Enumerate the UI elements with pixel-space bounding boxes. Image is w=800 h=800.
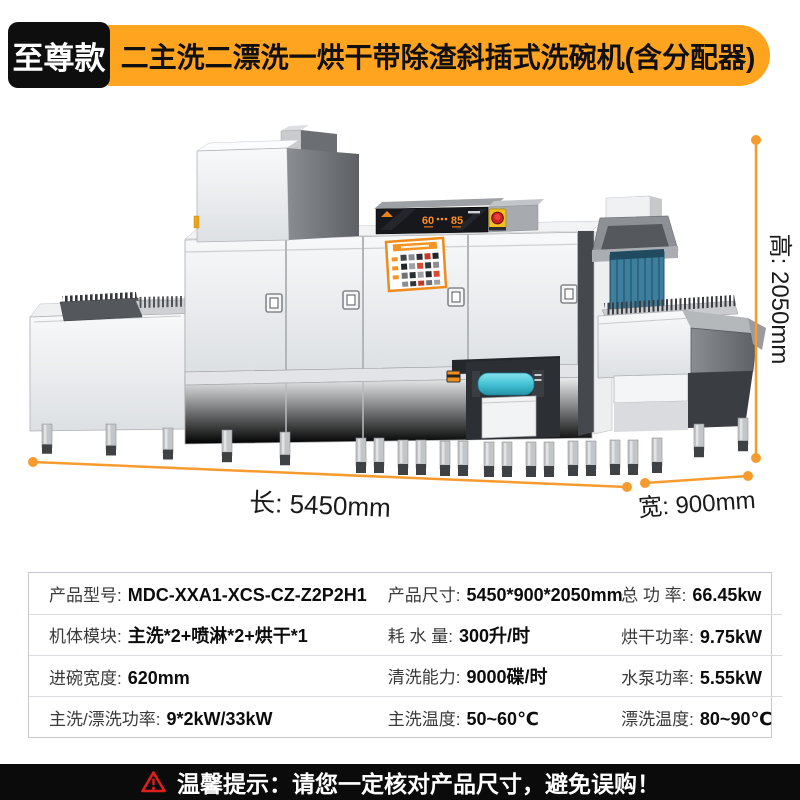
spec-value: 主洗*2+喷淋*2+烘干*1 bbox=[128, 626, 308, 646]
spec-label: 产品尺寸: bbox=[388, 586, 461, 605]
spec-value: 5450*900*2050mm bbox=[467, 585, 623, 605]
dimension-height-label: 高: 2050mm bbox=[766, 234, 793, 365]
spec-label: 主洗/漂洗功率: bbox=[49, 710, 160, 729]
spec-cell-rinse-temp: 漂洗温度:80~90℃ bbox=[601, 705, 782, 730]
spec-cell-size: 产品尺寸:5450*900*2050mm bbox=[368, 581, 601, 606]
spec-cell-dry-power: 烘干功率:9.75kW bbox=[601, 623, 782, 648]
dryer-hood bbox=[194, 125, 359, 242]
temp-display-right: 85 bbox=[451, 215, 463, 227]
spec-value: 50~60℃ bbox=[467, 709, 539, 729]
spec-label: 产品型号: bbox=[49, 586, 122, 605]
door-handle[interactable] bbox=[343, 291, 359, 309]
spec-value: 5.55kW bbox=[700, 668, 762, 688]
spec-label: 主洗温度: bbox=[388, 710, 461, 729]
spec-value: 9*2kW/33kW bbox=[166, 709, 272, 729]
spec-row: 产品型号:MDC-XXA1-XCS-CZ-Z2P2H1 产品尺寸:5450*90… bbox=[29, 573, 782, 614]
door-handle[interactable] bbox=[266, 294, 282, 312]
spec-value: 66.45kw bbox=[692, 585, 761, 605]
spec-cell-wash-power: 主洗/漂洗功率:9*2kW/33kW bbox=[29, 705, 368, 730]
spec-label: 烘干功率: bbox=[621, 628, 694, 647]
footer-notice-text: 温馨提示：请您一定核对产品尺寸，避免误购！ bbox=[177, 765, 660, 799]
temp-display-left: 60 bbox=[422, 215, 434, 227]
spec-cell-inlet-width: 进碗宽度:620mm bbox=[29, 664, 368, 689]
dimension-length-label: 长: 5450mm bbox=[249, 487, 392, 523]
spec-row: 机体模块:主洗*2+喷淋*2+烘干*1 耗 水 量:300升/时 烘干功率:9.… bbox=[29, 614, 782, 655]
spec-cell-modules: 机体模块:主洗*2+喷淋*2+烘干*1 bbox=[29, 622, 368, 648]
spec-cell-pump-power: 水泵功率:5.55kW bbox=[601, 664, 782, 689]
spec-cell-total-power: 总 功 率:66.45kw bbox=[601, 581, 782, 606]
spec-label: 机体模块: bbox=[49, 627, 122, 646]
spec-cell-wash-temp: 主洗温度:50~60℃ bbox=[368, 705, 601, 730]
warning-icon bbox=[140, 770, 167, 794]
spec-value: 9000碟/时 bbox=[467, 667, 548, 687]
model-tier-badge: 至尊款 bbox=[8, 22, 110, 88]
door-handle[interactable] bbox=[561, 285, 577, 303]
control-panel: 60 85 bbox=[374, 198, 544, 234]
product-title-banner: 二主洗二漂洗一烘干带除渣斜插式洗碗机(含分配器) bbox=[106, 25, 770, 86]
dimension-width-label: 宽: 900mm bbox=[637, 487, 756, 522]
spec-value: 300升/时 bbox=[459, 626, 530, 646]
footer-notice-bar: 温馨提示：请您一定核对产品尺寸，避免误购！ bbox=[0, 764, 800, 800]
emergency-stop-button[interactable] bbox=[489, 209, 506, 231]
spec-table: 产品型号:MDC-XXA1-XCS-CZ-Z2P2H1 产品尺寸:5450*90… bbox=[28, 572, 772, 738]
spec-label: 耗 水 量: bbox=[388, 627, 453, 646]
spec-label: 水泵功率: bbox=[621, 669, 694, 688]
spec-value: MDC-XXA1-XCS-CZ-Z2P2H1 bbox=[128, 585, 367, 605]
spec-value: 80~90℃ bbox=[700, 709, 772, 729]
door-handle[interactable] bbox=[448, 288, 464, 306]
spec-label: 进碗宽度: bbox=[49, 669, 122, 688]
spec-label: 总 功 率: bbox=[621, 586, 686, 605]
exit-section bbox=[592, 196, 766, 434]
spec-label: 漂洗温度: bbox=[621, 710, 694, 729]
spec-cell-water-usage: 耗 水 量:300升/时 bbox=[368, 622, 601, 648]
spec-row: 主洗/漂洗功率:9*2kW/33kW 主洗温度:50~60℃ 漂洗温度:80~9… bbox=[29, 696, 782, 737]
spec-label: 清洗能力: bbox=[388, 668, 461, 687]
spec-cell-model: 产品型号:MDC-XXA1-XCS-CZ-Z2P2H1 bbox=[29, 581, 368, 606]
spec-row: 进碗宽度:620mm 清洗能力:9000碟/时 水泵功率:5.55kW bbox=[29, 655, 782, 696]
product-figure: 60 85 bbox=[0, 90, 800, 535]
instruction-poster bbox=[386, 238, 446, 291]
spec-value: 620mm bbox=[128, 668, 190, 688]
spec-cell-capacity: 清洗能力:9000碟/时 bbox=[368, 663, 601, 689]
spec-value: 9.75kW bbox=[700, 627, 762, 647]
